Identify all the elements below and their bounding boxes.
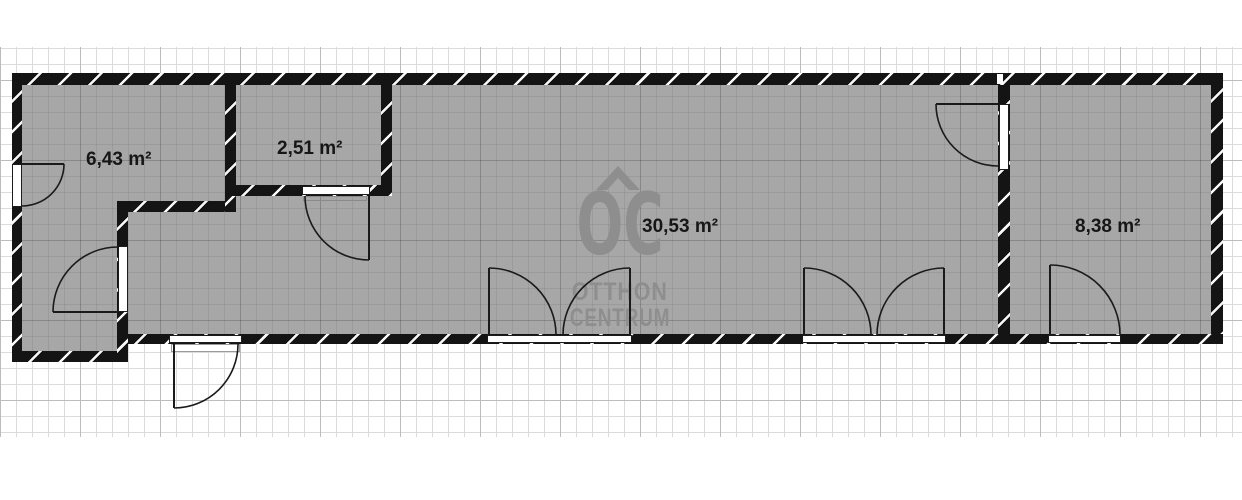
- threshold-room2-door: [303, 196, 367, 201]
- opening-exterior-bottom: [169, 335, 242, 343]
- wall-notch: [117, 201, 236, 212]
- wall-bottom-room1: [12, 351, 128, 362]
- room-3-area-label: 30,53 m²: [642, 216, 718, 239]
- wall-right: [1211, 73, 1223, 344]
- opening-double-door-2: [802, 335, 946, 343]
- room-2-area-label: 2,51 m²: [277, 138, 342, 161]
- opening-room4-bottom: [1048, 335, 1121, 343]
- room-4-area-label: 8,38 m²: [1075, 216, 1140, 239]
- watermark-line1: OTTHON: [520, 280, 720, 305]
- wall-joint-gap: [997, 74, 1003, 84]
- threshold-exterior-door: [171, 344, 240, 352]
- wall-room2-right: [381, 85, 392, 196]
- room-1-area-label: 6,43 m²: [86, 149, 151, 172]
- watermark-line2: CENTRUM: [520, 306, 720, 331]
- opening-room2-door: [302, 186, 370, 195]
- wall-top: [12, 73, 1223, 85]
- wall-left: [12, 73, 22, 362]
- opening-entry-left: [12, 164, 22, 207]
- opening-room1-inner: [118, 246, 128, 312]
- opening-room4-top: [999, 104, 1009, 170]
- floor-plan: OC OTTHON CENTRUM: [0, 0, 1242, 500]
- opening-double-door-1: [487, 335, 632, 343]
